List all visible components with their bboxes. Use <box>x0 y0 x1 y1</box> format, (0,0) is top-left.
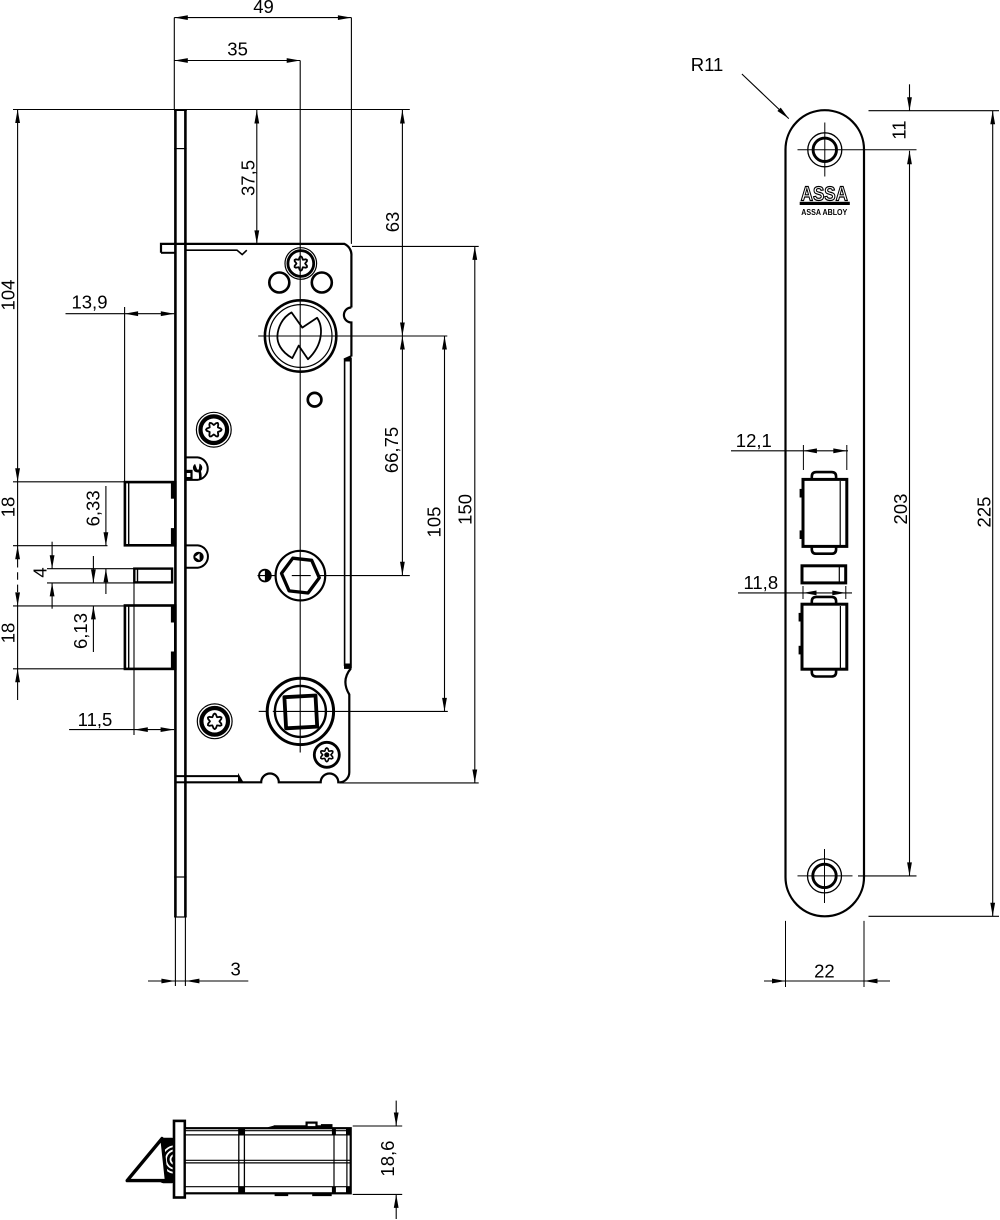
svg-text:6,13: 6,13 <box>70 613 91 649</box>
svg-text:66,75: 66,75 <box>381 427 402 473</box>
svg-text:3: 3 <box>230 959 240 980</box>
svg-text:203: 203 <box>890 494 911 525</box>
svg-text:22: 22 <box>814 960 835 981</box>
svg-text:6,33: 6,33 <box>83 490 104 526</box>
svg-text:18: 18 <box>0 497 18 518</box>
svg-text:49: 49 <box>253 0 274 17</box>
svg-text:104: 104 <box>0 280 18 311</box>
svg-text:ASSA ABLOY: ASSA ABLOY <box>801 208 848 217</box>
svg-text:11,5: 11,5 <box>78 709 113 730</box>
svg-text:18,6: 18,6 <box>377 1141 398 1177</box>
svg-text:35: 35 <box>227 39 248 60</box>
svg-text:13,9: 13,9 <box>71 291 107 312</box>
svg-text:63: 63 <box>382 212 403 233</box>
svg-text:37,5: 37,5 <box>237 160 258 196</box>
svg-text:105: 105 <box>424 507 445 538</box>
svg-text:18: 18 <box>0 623 18 644</box>
svg-text:4: 4 <box>30 567 51 577</box>
svg-text:150: 150 <box>455 494 476 525</box>
svg-text:11,8: 11,8 <box>743 572 778 593</box>
svg-text:12,1: 12,1 <box>736 430 772 451</box>
svg-text:R11: R11 <box>691 54 724 75</box>
svg-text:225: 225 <box>974 497 995 528</box>
svg-text:11: 11 <box>888 120 909 139</box>
